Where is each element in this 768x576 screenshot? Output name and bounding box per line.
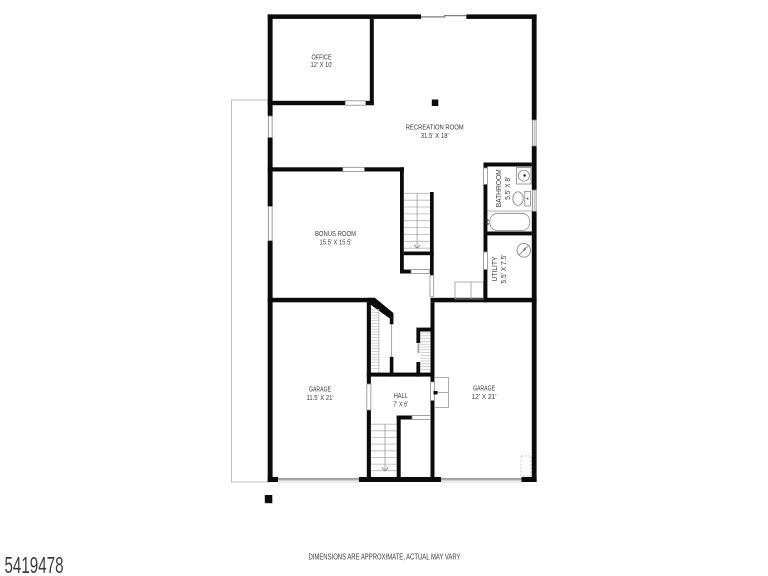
svg-text:5419478: 5419478: [5, 552, 64, 576]
svg-text:BONUS ROOM: BONUS ROOM: [315, 231, 356, 238]
svg-text:12' X 10': 12' X 10': [311, 62, 333, 69]
svg-text:15.5' X 15.5': 15.5' X 15.5': [320, 240, 352, 247]
svg-text:UTILITY: UTILITY: [492, 256, 499, 281]
svg-text:7' X 6': 7' X 6': [393, 402, 408, 409]
svg-text:11.5' X 21': 11.5' X 21': [307, 395, 334, 402]
svg-text:BATHROOM: BATHROOM: [496, 169, 503, 207]
svg-text:DIMENSIONS ARE APPROXIMATE, AC: DIMENSIONS ARE APPROXIMATE, ACTUAL MAY V…: [309, 552, 461, 562]
svg-text:12' X 21': 12' X 21': [472, 394, 497, 401]
svg-text:31.5' X 18': 31.5' X 18': [421, 133, 449, 140]
svg-text:5.5' X 8': 5.5' X 8': [505, 177, 512, 200]
svg-text:HALL: HALL: [394, 393, 408, 400]
svg-text:GARAGE: GARAGE: [473, 386, 495, 393]
svg-text:5.5' X 7.5': 5.5' X 7.5': [501, 255, 508, 284]
svg-text:OFFICE: OFFICE: [312, 54, 332, 61]
svg-text:RECREATION ROOM: RECREATION ROOM: [406, 125, 464, 132]
svg-text:GARAGE: GARAGE: [309, 387, 331, 394]
